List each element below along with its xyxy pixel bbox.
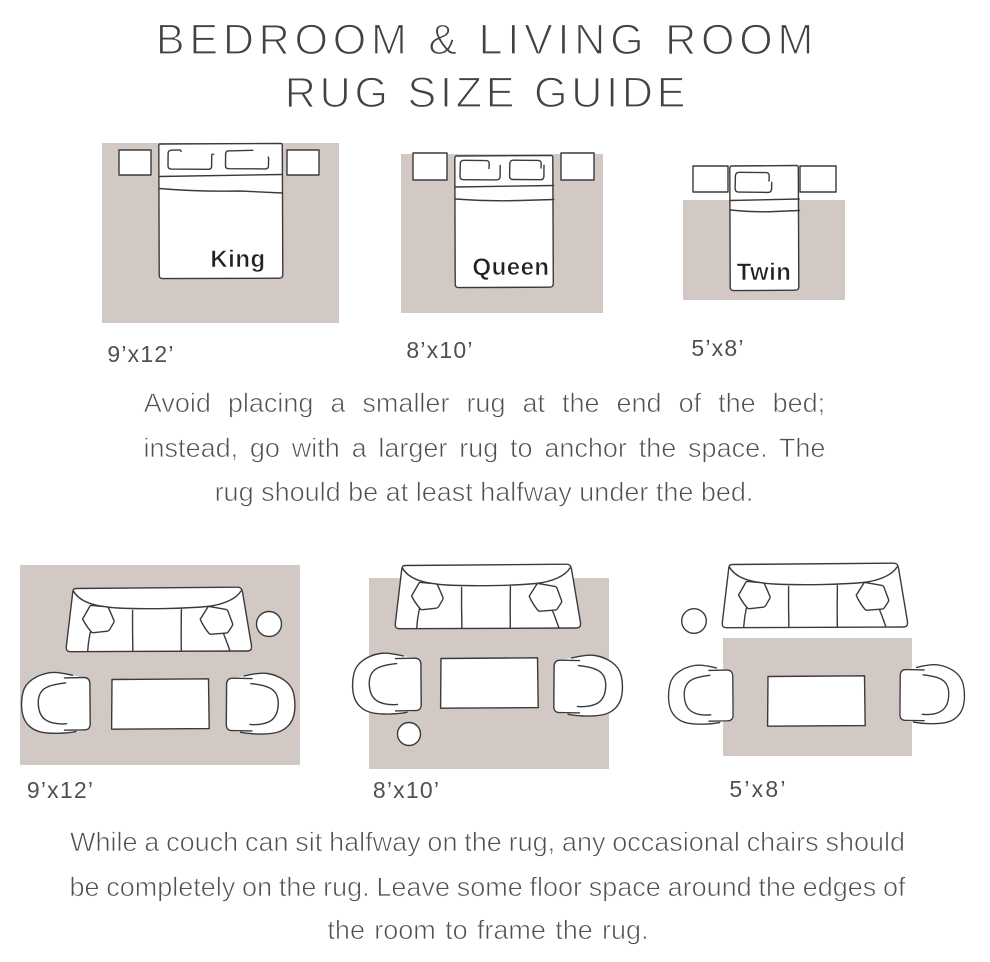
- svg-text:8’x10’: 8’x10’: [406, 337, 473, 363]
- svg-text:Twin: Twin: [737, 259, 792, 286]
- svg-text:9’x12’: 9’x12’: [107, 341, 174, 367]
- svg-text:5’x8’: 5’x8’: [729, 776, 787, 802]
- svg-text:King: King: [210, 246, 265, 273]
- svg-text:9’x12’: 9’x12’: [27, 777, 94, 803]
- svg-text:8’x10’: 8’x10’: [373, 777, 440, 803]
- svg-text:Queen: Queen: [472, 254, 549, 281]
- svg-text:5’x8’: 5’x8’: [691, 335, 744, 361]
